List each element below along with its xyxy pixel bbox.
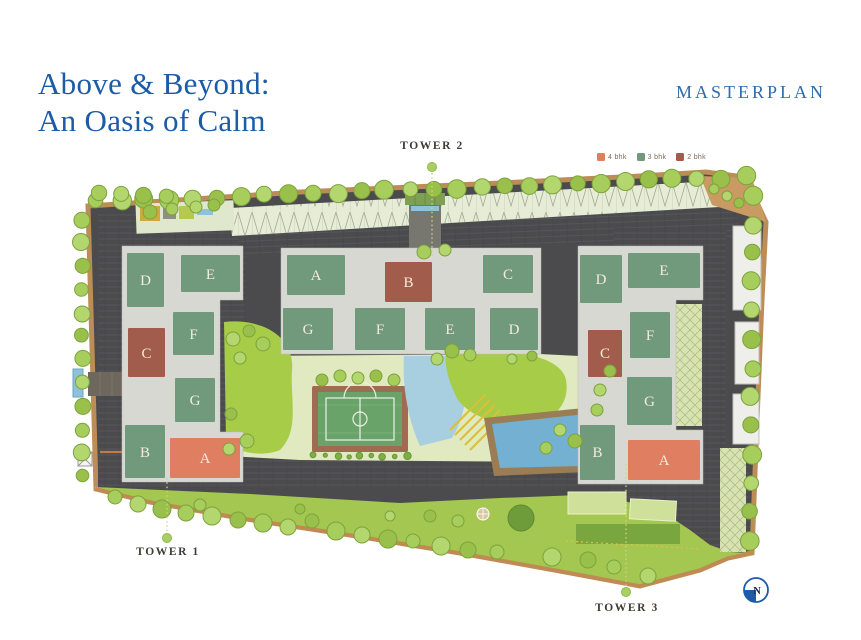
tree — [445, 344, 459, 358]
block-b-tower-1[interactable]: B — [125, 425, 165, 478]
svg-text:E: E — [206, 267, 215, 283]
tree — [580, 552, 596, 568]
tree — [640, 171, 657, 188]
tree — [540, 442, 552, 454]
svg-text:A: A — [659, 453, 670, 469]
tree — [75, 398, 91, 414]
tree — [741, 532, 760, 551]
block-g-tower-1[interactable]: G — [175, 378, 215, 422]
svg-text:C: C — [503, 267, 513, 283]
tree — [568, 434, 582, 448]
tree — [370, 370, 382, 382]
tree — [744, 476, 759, 491]
site-plan-illustration: D E C F G B A A — [0, 0, 861, 640]
tree — [194, 499, 206, 511]
svg-text:D: D — [509, 322, 520, 338]
tree — [305, 514, 319, 528]
tree — [75, 328, 89, 342]
tree — [143, 205, 157, 219]
tree — [159, 189, 173, 203]
tree — [323, 453, 327, 457]
block-f-tower-3[interactable]: F — [630, 312, 670, 358]
svg-text:F: F — [646, 328, 654, 344]
tree — [310, 452, 316, 458]
block-c-tower-2[interactable]: C — [483, 255, 533, 293]
tree — [594, 384, 606, 396]
masterplan-page: Above & Beyond: An Oasis of Calm MASTERP… — [0, 0, 861, 640]
tree — [460, 542, 476, 558]
tree — [208, 199, 220, 211]
tree — [234, 352, 246, 364]
lawn-court-1 — [568, 492, 626, 514]
tree — [166, 203, 178, 215]
tree — [178, 505, 194, 521]
tree — [335, 453, 342, 460]
tower-3-marker-dot — [622, 588, 631, 597]
tree — [439, 244, 451, 256]
tower-2-marker-dot — [428, 163, 437, 172]
tree — [554, 424, 566, 436]
tree — [640, 568, 656, 584]
block-e-tower-3[interactable]: E — [628, 253, 700, 288]
tree — [490, 545, 504, 559]
tree — [354, 527, 370, 543]
tree — [734, 198, 744, 208]
tree — [223, 443, 235, 455]
block-a-tower-2[interactable]: A — [287, 255, 345, 295]
tree — [737, 166, 755, 184]
svg-text:D: D — [140, 273, 151, 289]
tree — [570, 176, 585, 191]
tree — [280, 185, 298, 203]
tree — [280, 519, 296, 535]
tree — [379, 530, 397, 548]
sports-court — [312, 382, 408, 452]
tree — [108, 490, 122, 504]
svg-text:F: F — [376, 322, 384, 338]
tree — [742, 503, 758, 519]
tree — [74, 212, 90, 228]
tree — [190, 201, 202, 213]
tree — [507, 354, 517, 364]
tree — [256, 186, 272, 202]
tree — [226, 332, 240, 346]
tree — [73, 444, 90, 461]
tree — [74, 306, 90, 322]
tree — [464, 349, 476, 361]
tree — [604, 365, 616, 377]
tree — [254, 514, 272, 532]
svg-text:G: G — [303, 322, 314, 338]
tree — [316, 374, 328, 386]
tree — [592, 175, 610, 193]
block-g-tower-3[interactable]: G — [627, 377, 672, 425]
block-d-tower-1[interactable]: D — [127, 253, 164, 307]
tree — [744, 302, 760, 318]
tree — [743, 445, 762, 464]
tree — [745, 361, 761, 377]
tree — [327, 522, 345, 540]
tree — [448, 180, 467, 199]
tree-grove — [508, 505, 534, 531]
tree — [388, 374, 400, 386]
tree — [743, 417, 759, 433]
block-f-tower-2[interactable]: F — [355, 308, 405, 350]
tree — [75, 350, 91, 366]
tree — [329, 185, 347, 203]
tree — [404, 452, 411, 459]
tree — [305, 185, 321, 201]
tree — [354, 183, 370, 199]
tree — [474, 179, 490, 195]
block-d-tower-2[interactable]: D — [490, 308, 538, 350]
tree — [75, 423, 89, 437]
tree — [135, 187, 151, 203]
svg-text:E: E — [445, 322, 454, 338]
tree — [527, 351, 537, 361]
tree — [76, 469, 89, 482]
tower-1-marker-dot — [163, 534, 172, 543]
tree — [745, 217, 762, 234]
svg-text:G: G — [190, 393, 201, 409]
tree — [352, 372, 364, 384]
tree — [745, 244, 761, 260]
tree — [607, 560, 621, 574]
tree — [426, 181, 442, 197]
tree — [114, 186, 129, 201]
svg-text:D: D — [596, 272, 607, 288]
block-c-tower-1[interactable]: C — [128, 328, 165, 377]
svg-text:C: C — [600, 346, 610, 362]
tree — [392, 454, 397, 459]
tree — [406, 534, 420, 548]
tree — [709, 184, 719, 194]
tree — [543, 548, 561, 566]
tree — [432, 537, 450, 555]
tree — [334, 370, 346, 382]
tree — [369, 453, 374, 458]
tree — [431, 353, 443, 365]
tree — [424, 510, 436, 522]
svg-text:B: B — [140, 445, 150, 461]
tree — [295, 504, 305, 514]
tree — [75, 375, 89, 389]
tree — [225, 408, 237, 420]
block-d-tower-3[interactable]: D — [580, 255, 622, 303]
tree — [497, 178, 513, 194]
tree — [243, 325, 255, 337]
svg-text:B: B — [403, 275, 413, 291]
tree — [347, 455, 351, 459]
tree — [417, 245, 431, 259]
tree — [544, 176, 562, 194]
tree — [403, 182, 418, 197]
block-f-tower-1[interactable]: F — [173, 312, 214, 355]
svg-text:E: E — [659, 263, 668, 279]
tree — [617, 173, 635, 191]
tree — [379, 454, 386, 461]
svg-text:C: C — [141, 346, 151, 362]
tree — [722, 191, 732, 201]
svg-text:A: A — [200, 451, 211, 467]
tree — [356, 452, 363, 459]
tree — [591, 404, 603, 416]
tree — [240, 434, 254, 448]
tree — [256, 337, 270, 351]
block-b-tower-3[interactable]: B — [580, 425, 615, 480]
tree — [75, 283, 89, 297]
tree — [452, 515, 464, 527]
shrub-bed — [576, 524, 680, 544]
tree — [73, 234, 90, 251]
tree — [689, 171, 704, 186]
adjacent-building — [733, 226, 761, 310]
tree — [521, 178, 538, 195]
svg-text:A: A — [311, 268, 322, 284]
block-g-tower-2[interactable]: G — [283, 308, 333, 350]
tree — [744, 186, 763, 205]
compass-icon: N — [744, 578, 768, 602]
tree — [130, 496, 146, 512]
tree — [741, 387, 759, 405]
svg-text:F: F — [189, 327, 197, 343]
tree — [742, 272, 760, 290]
compass-north-label: N — [753, 586, 761, 597]
tree — [153, 500, 171, 518]
svg-text:G: G — [644, 394, 655, 410]
tree — [75, 258, 90, 273]
tree — [743, 331, 761, 349]
lawn-court-2 — [630, 499, 677, 521]
block-e-tower-1[interactable]: E — [181, 255, 240, 292]
svg-text:B: B — [592, 445, 602, 461]
tree — [385, 511, 395, 521]
tree — [232, 188, 250, 206]
tree — [91, 185, 106, 200]
block-a-tower-3[interactable]: A — [628, 440, 700, 480]
block-b-tower-2[interactable]: B — [385, 262, 432, 302]
tree — [663, 169, 681, 187]
tree — [230, 512, 246, 528]
tree — [375, 180, 394, 199]
block-e-tower-2[interactable]: E — [425, 308, 475, 350]
tree — [203, 507, 221, 525]
